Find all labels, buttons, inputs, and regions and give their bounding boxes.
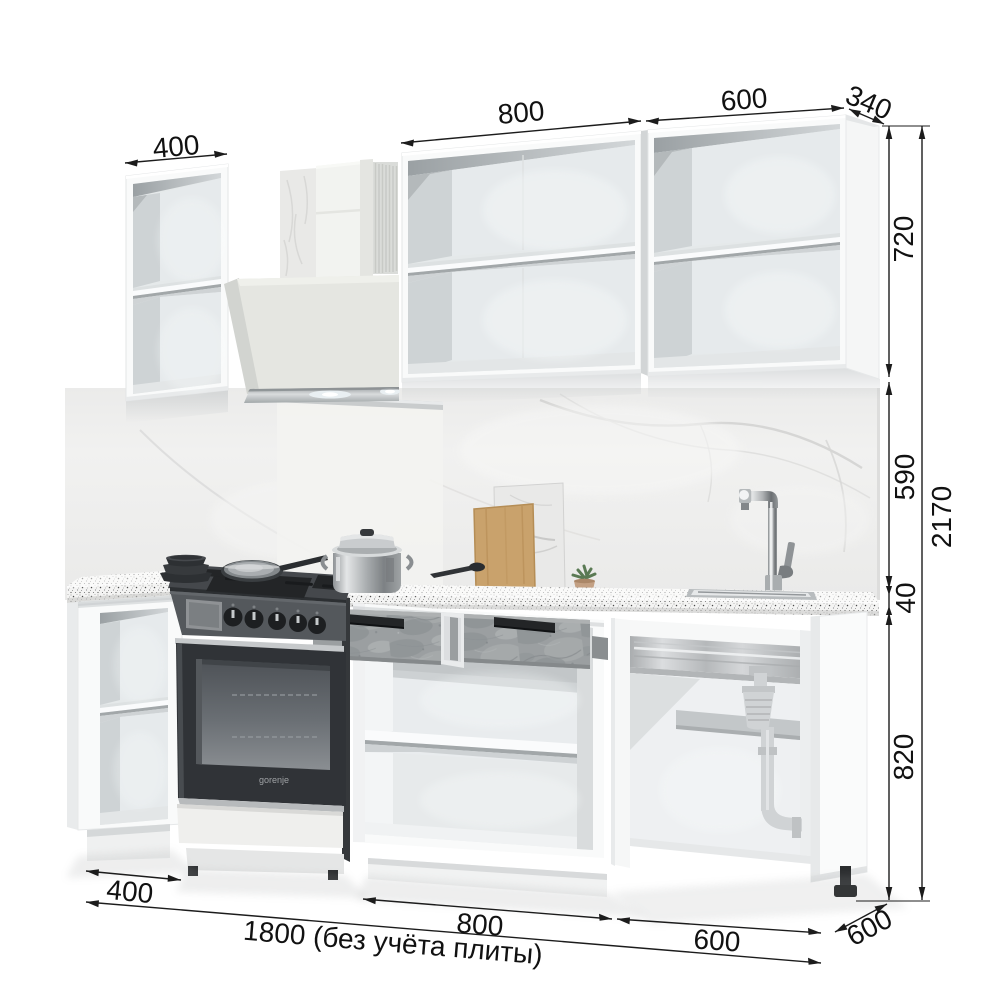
svg-text:590: 590	[889, 454, 920, 501]
svg-text:400: 400	[105, 874, 154, 909]
svg-text:820: 820	[888, 734, 919, 781]
svg-text:800: 800	[496, 95, 545, 130]
svg-text:2170: 2170	[926, 486, 957, 548]
svg-text:40: 40	[890, 582, 921, 613]
svg-text:gorenje: gorenje	[259, 775, 289, 785]
svg-text:600: 600	[720, 82, 769, 116]
svg-text:720: 720	[888, 216, 919, 263]
svg-text:600: 600	[693, 923, 742, 957]
svg-text:400: 400	[151, 129, 200, 164]
